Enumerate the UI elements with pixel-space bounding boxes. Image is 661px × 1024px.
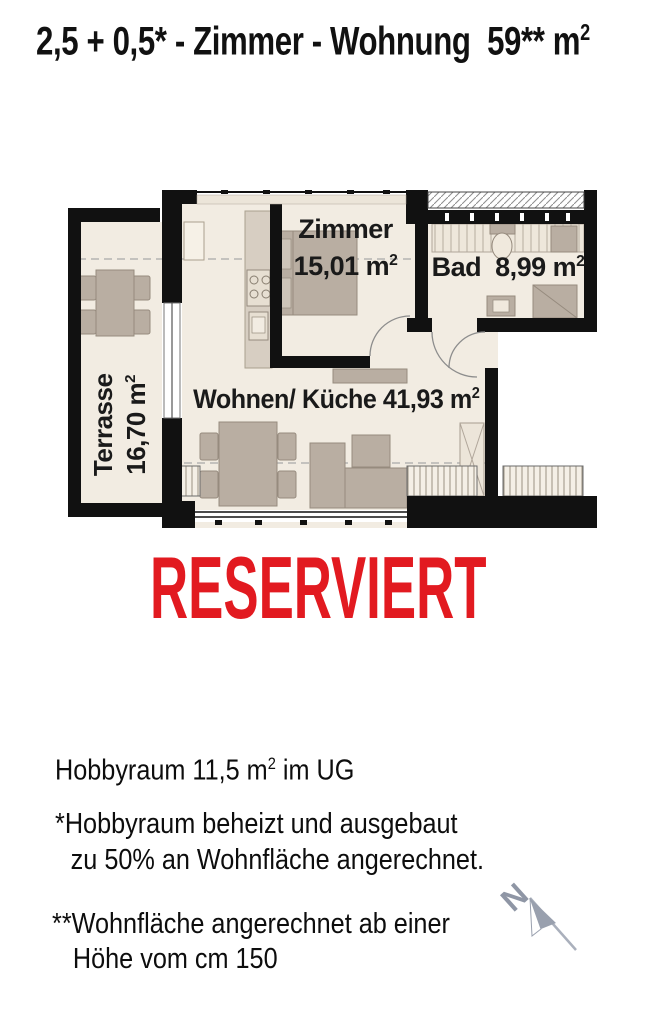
top-window (197, 190, 406, 204)
radiator-outside (503, 466, 583, 496)
radiator-right (407, 466, 477, 496)
zimmer-room-label: Zimmer 15,01 m2 (258, 214, 433, 282)
toilet-cistern (490, 224, 515, 234)
floorplan-flyer: 2,5 + 0,5* - Zimmer - Wohnung 59** m2 (0, 0, 661, 1024)
north-arrow-icon: N (492, 866, 597, 986)
hatched-wall (428, 192, 584, 208)
footnote-1: *Hobbyraum beheizt und ausgebaut zu 50% … (55, 806, 484, 878)
hobbyraum-note: Hobbyraum 11,5 m2 im UG (55, 746, 354, 789)
armchair (352, 435, 390, 467)
wohnen-kueche-room-label: Wohnen/ Küche 41,93 m2 (193, 378, 463, 415)
bad-room-label: Bad8,99 m2 (413, 246, 603, 283)
floor-plan: Zimmer 15,01 m2 Bad8,99 m2 Wohnen/ Küche… (63, 190, 598, 536)
footnote-2: **Wohnfläche angerechnet ab einer Höhe v… (52, 907, 450, 977)
compass-north-label: N (494, 876, 535, 918)
status-reserved-label: RESERVIERT (150, 544, 486, 632)
terrace-sliding-door (164, 303, 180, 418)
title-sup: 2 (580, 19, 590, 45)
page-title: 2,5 + 0,5* - Zimmer - Wohnung 59** m2 (36, 21, 590, 61)
terrasse-room-label: Terrasse 16,70 m2 (90, 350, 150, 500)
